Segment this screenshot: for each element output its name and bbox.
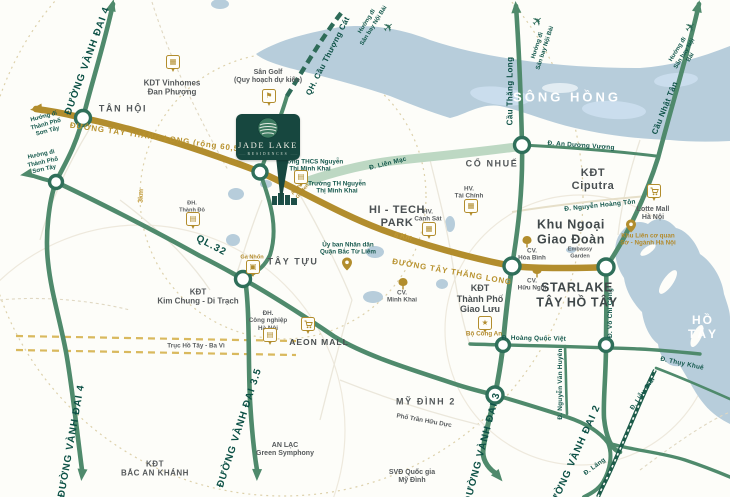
road-an-duong-vuong — [522, 145, 656, 156]
train-station-nhon-icon: ▣ — [246, 260, 260, 274]
road-ring-3 — [483, 266, 512, 474]
red-river — [256, 26, 730, 142]
minor-roads — [40, 120, 640, 425]
location-map: ĐƯỜNG VÀNH ĐAI 4 ĐƯỜNG VÀNH ĐAI 4 ĐƯỜNG … — [0, 0, 730, 497]
road-ring-3-5 — [245, 279, 257, 470]
aeon-shopping-cart-icon — [301, 317, 315, 331]
golf-flag-icon: ⚑ — [262, 89, 276, 103]
map-geometry — [0, 0, 730, 497]
road-lien-mac — [308, 147, 516, 181]
university-cong-nghiep-icon: ▤ — [263, 328, 277, 342]
academy-canh-sat-icon: ▦ — [422, 222, 436, 236]
map-pin-ubnd-icon — [342, 258, 352, 271]
park-tree-minh-khai-icon — [398, 278, 408, 290]
west-lake — [615, 219, 730, 424]
school-thcs-icon: ▤ — [294, 170, 308, 184]
jade-lake-residences-sign: JADE LAKE RESIDENCES — [236, 114, 300, 160]
academy-tai-chinh-icon: ▦ — [464, 199, 478, 213]
park-tree-huu-nghi-icon — [532, 266, 542, 278]
road-vo-chi-cong — [604, 267, 620, 452]
jade-lake-logo-icon — [257, 117, 279, 139]
project-subtitle: RESIDENCES — [237, 152, 300, 156]
road-ql32 — [56, 182, 495, 395]
park-tree-hoa-binh-icon — [522, 236, 532, 248]
vinhomes-building-icon: ▦ — [166, 55, 180, 69]
project-pin-pointer — [276, 157, 289, 204]
road-ring-2 — [495, 395, 610, 497]
road-ring-2-east — [608, 443, 730, 477]
map-pin-lien-co-quan-icon — [626, 220, 636, 233]
road-ring-4 — [47, 4, 113, 470]
road-nguyen-van-huyen — [565, 346, 567, 414]
university-thanh-do-icon: ▤ — [186, 212, 200, 226]
lotte-shopping-cart-icon — [647, 184, 661, 198]
axis-ho-tay-ba-vi — [16, 336, 296, 355]
project-title: JADE LAKE — [238, 140, 298, 150]
police-ministry-icon: ★ — [478, 316, 492, 330]
